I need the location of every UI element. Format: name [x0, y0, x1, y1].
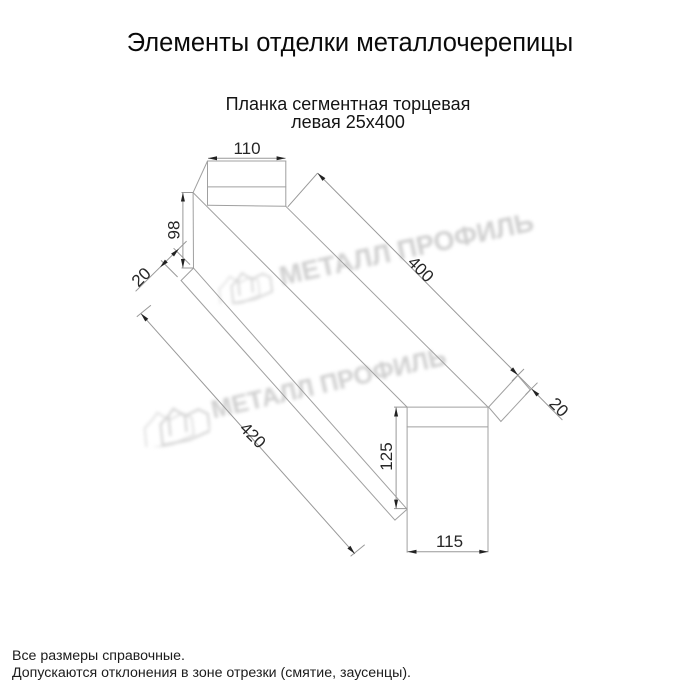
svg-text:115: 115	[436, 532, 463, 551]
svg-text:20: 20	[545, 394, 572, 421]
svg-text:400: 400	[404, 253, 437, 286]
svg-text:20: 20	[128, 264, 155, 291]
svg-text:420: 420	[236, 419, 269, 452]
svg-text:125: 125	[377, 442, 396, 470]
svg-text:98: 98	[165, 221, 184, 240]
svg-text:110: 110	[233, 139, 260, 158]
